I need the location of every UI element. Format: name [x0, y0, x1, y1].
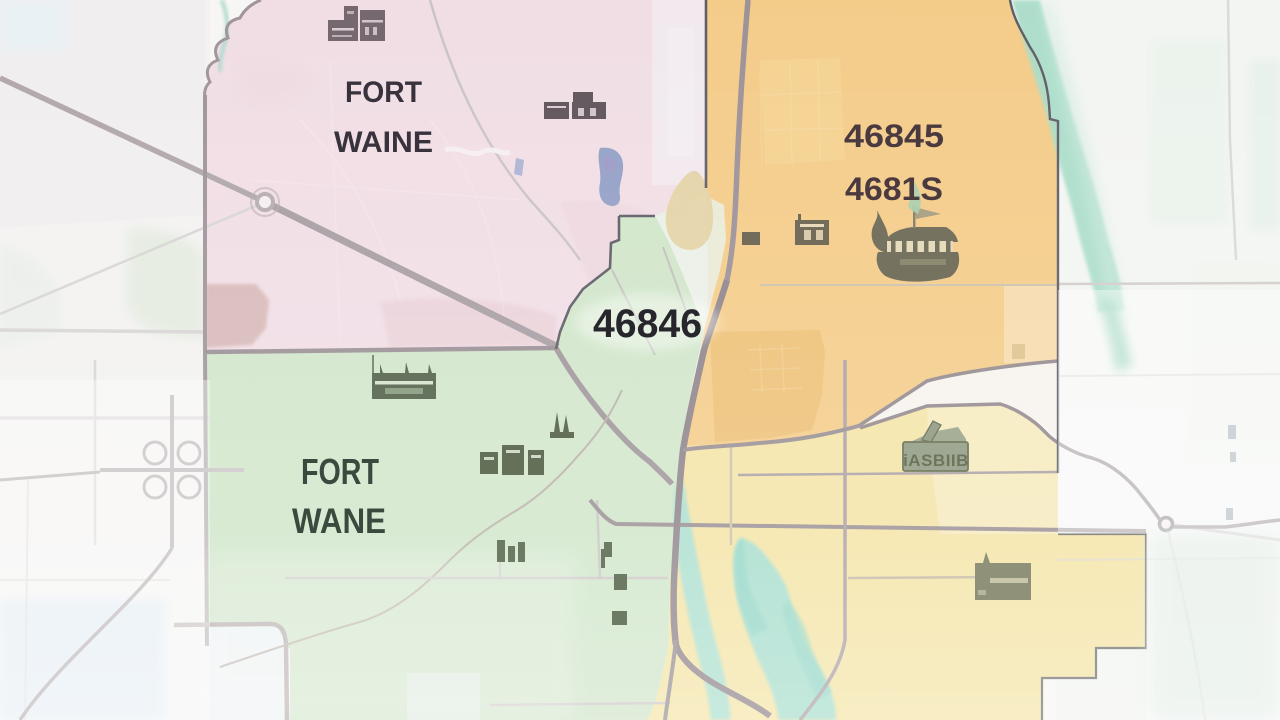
- svg-text:4681S: 4681S: [845, 171, 943, 207]
- svg-text:46846: 46846: [593, 302, 702, 346]
- svg-text:WANE: WANE: [292, 502, 386, 541]
- svg-text:FORT: FORT: [301, 451, 379, 492]
- svg-text:46845: 46845: [844, 118, 944, 154]
- svg-text:FORT: FORT: [345, 76, 422, 109]
- svg-text:WAINE: WAINE: [334, 126, 433, 159]
